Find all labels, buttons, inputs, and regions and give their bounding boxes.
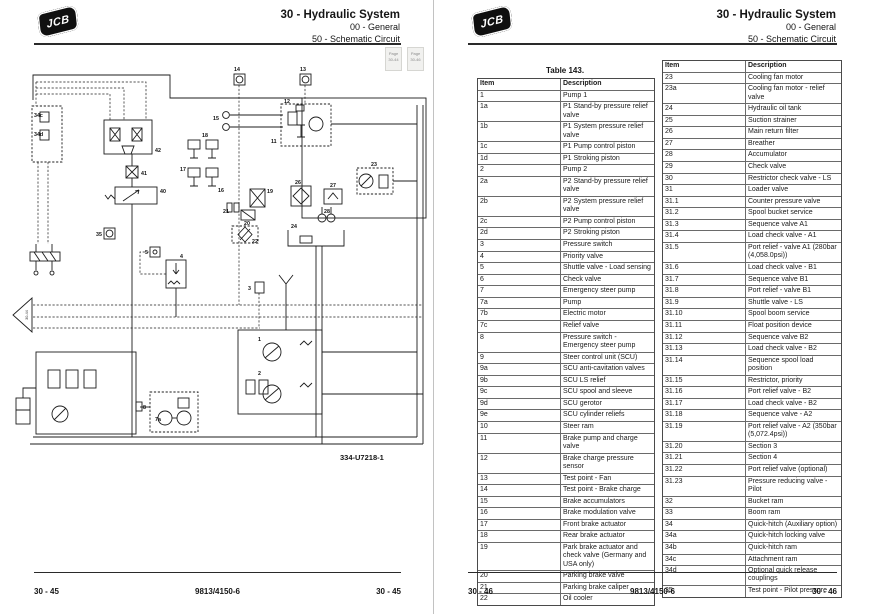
diagram-label-4: 4 (180, 254, 183, 260)
table-row: 31.18Sequence valve - A2 (663, 410, 841, 422)
item-cell: 29 (663, 162, 746, 173)
quick-hitch-ram (30, 244, 60, 275)
park-brake-group (227, 189, 265, 220)
item-cell: 31.9 (663, 298, 746, 309)
description-cell: Electric motor (561, 309, 654, 320)
table-row: 31.4Load check valve - A1 (663, 231, 841, 243)
description-cell: Pressure switch (561, 240, 654, 251)
table-row: 24Hydraulic oil tank (663, 104, 841, 116)
diagram-label-26: 26 (295, 180, 301, 186)
table-row: 31.5Port relief - valve A1 (280bar (4,05… (663, 243, 841, 263)
description-cell: Attachment ram (746, 555, 841, 566)
table-row: 4Priority valve (478, 252, 654, 264)
diagram-label-12: 12 (284, 99, 290, 105)
table-row: 2Pump 2 (478, 165, 654, 177)
table-row: 9aSCU anti-cavitation valves (478, 364, 654, 376)
item-cell: 31.4 (663, 231, 746, 242)
diagram-label-22: 22 (252, 239, 258, 245)
description-cell: Cooling fan motor - relief valve (746, 84, 841, 103)
hydraulic-tank (288, 230, 344, 444)
diagram-label-2: 2 (258, 371, 261, 377)
description-cell: Steer ram (561, 422, 654, 433)
item-cell: 13 (478, 474, 561, 485)
item-cell: 31.11 (663, 321, 746, 332)
table-header-row: ItemDescription (663, 61, 841, 73)
hydraulic-schematic: 30-44 1413121115181716231920212627282422… (0, 0, 433, 614)
description-cell: Hydraulic oil tank (746, 104, 841, 115)
description-cell: Sequence valve - A2 (746, 410, 841, 421)
description-cell: Sequence spool load position (746, 356, 841, 375)
description-cell: Counter pressure valve (746, 197, 841, 208)
description-cell: P1 Pump control piston (561, 142, 654, 153)
diagram-label-28: 28 (324, 209, 330, 215)
footer-rule (34, 572, 401, 574)
table-row: 31.9Shuttle valve - LS (663, 298, 841, 310)
description-cell: Port relief - valve A1 (280bar (4,058.0p… (746, 243, 841, 262)
scu-block (36, 352, 136, 434)
test-point-14 (234, 74, 245, 85)
item-cell: 24 (663, 104, 746, 115)
table-row: 18Rear brake actuator (478, 531, 654, 543)
diagram-label-15: 15 (213, 116, 219, 122)
description-cell: Optional quick release couplings (746, 566, 841, 585)
footer-rule (468, 572, 837, 574)
diagram-label-11: 11 (271, 139, 277, 145)
description-cell: Boom ram (746, 508, 841, 519)
description-cell: Shuttle valve - Load sensing (561, 263, 654, 274)
diagram-label-27: 27 (330, 183, 336, 189)
description-cell: Load check valve - B2 (746, 344, 841, 355)
table-row: 7bElectric motor (478, 309, 654, 321)
table-row: 15Brake accumulators (478, 497, 654, 509)
description-cell: P1 Stand-by pressure relief valve (561, 102, 654, 121)
description-cell: Quick-hitch ram (746, 543, 841, 554)
component-table-items-23-35: ItemDescription23Cooling fan motor23aCoo… (662, 60, 842, 598)
item-cell: 22 (478, 594, 561, 605)
description-cell: Load check valve - B1 (746, 263, 841, 274)
description-cell: Check valve (561, 275, 654, 286)
table-row: 2aP2 Stand-by pressure relief valve (478, 177, 654, 197)
item-cell: 31.2 (663, 208, 746, 219)
description-cell: Brake modulation valve (561, 508, 654, 519)
description-cell: Quick-hitch (Auxiliary option) (746, 520, 841, 531)
brake-pump-block (281, 104, 331, 146)
description-cell: SCU LS relief (561, 376, 654, 387)
table-row: 27Breather (663, 139, 841, 151)
item-cell: 10 (478, 422, 561, 433)
page-header: 30 - Hydraulic System 00 - General 50 - … (716, 8, 836, 45)
item-cell: 2a (478, 177, 561, 196)
description-cell: Shuttle valve - LS (746, 298, 841, 309)
description-cell: Port relief valve (optional) (746, 465, 841, 476)
item-cell: 25 (663, 116, 746, 127)
table-row: 17Front brake actuator (478, 520, 654, 532)
item-cell: 31 (663, 185, 746, 196)
table-row: 5Shuttle valve - Load sensing (478, 263, 654, 275)
description-cell: Brake pump and charge valve (561, 434, 654, 453)
table-row: 9eSCU cylinder reliefs (478, 410, 654, 422)
item-cell: 31.16 (663, 387, 746, 398)
table-row: 9bSCU LS relief (478, 376, 654, 388)
item-cell: 31.3 (663, 220, 746, 231)
table-row: 23Cooling fan motor (663, 73, 841, 85)
brake-actuators (188, 140, 218, 186)
item-cell: 34c (663, 555, 746, 566)
item-cell: 9b (478, 376, 561, 387)
diagram-label-14: 14 (234, 67, 240, 73)
test-point-13 (300, 74, 311, 85)
table-row: 34cAttachment ram (663, 555, 841, 567)
item-cell: 1d (478, 154, 561, 165)
column-header-description: Description (561, 79, 654, 90)
item-cell: 7b (478, 309, 561, 320)
table-row: 22Oil cooler (478, 594, 654, 605)
description-cell: Brake accumulators (561, 497, 654, 508)
column-header-description: Description (746, 61, 841, 72)
table-row: 31.12Sequence valve B2 (663, 333, 841, 345)
description-cell: Restrictor, priority (746, 376, 841, 387)
table-row: 31.7Sequence valve B1 (663, 275, 841, 287)
description-cell: Port relief - valve B1 (746, 286, 841, 297)
test-point-35 (104, 228, 115, 239)
table-row: 31Loader valve (663, 185, 841, 197)
item-cell: 7a (478, 298, 561, 309)
item-cell: 2b (478, 197, 561, 216)
item-cell: 2d (478, 228, 561, 239)
item-cell: 31.13 (663, 344, 746, 355)
diagram-label-7a: 7a (155, 417, 161, 423)
item-cell: 1c (478, 142, 561, 153)
item-cell: 31.23 (663, 477, 746, 496)
table-row: 16Brake modulation valve (478, 508, 654, 520)
description-cell: Main return filter (746, 127, 841, 138)
item-cell: 34b (663, 543, 746, 554)
item-cell: 31.19 (663, 422, 746, 441)
table-row: 31.11Float position device (663, 321, 841, 333)
item-cell: 30 (663, 174, 746, 185)
table-row: 9Steer control unit (SCU) (478, 353, 654, 365)
diagram-label-34c: 34c (34, 113, 43, 119)
description-cell: Spool bucket service (746, 208, 841, 219)
item-cell: 8 (478, 333, 561, 352)
footer-doc-number: 9813/4150-6 (468, 587, 837, 596)
table-row: 2dP2 Stroking piston (478, 228, 654, 240)
description-cell: Sequence valve B1 (746, 275, 841, 286)
item-cell: 6 (478, 275, 561, 286)
table-row: 2cP2 Pump control piston (478, 217, 654, 229)
main-pump-block (238, 330, 423, 414)
footer-doc-number: 9813/4150-6 (34, 587, 401, 596)
breather (324, 189, 342, 204)
column-header-item: Item (478, 79, 561, 90)
table-row: 12Brake charge pressure sensor (478, 454, 654, 474)
table-title: Table 143. (477, 66, 653, 75)
description-cell: Test point - Fan (561, 474, 654, 485)
diagram-label-1: 1 (258, 337, 261, 343)
table-row: 7cRelief valve (478, 321, 654, 333)
item-cell: 1a (478, 102, 561, 121)
header-rule (468, 43, 837, 45)
table-row: 26Main return filter (663, 127, 841, 139)
item-cell: 31.21 (663, 453, 746, 464)
description-cell: P2 System pressure relief valve (561, 197, 654, 216)
description-cell: SCU cylinder reliefs (561, 410, 654, 421)
description-cell: Port relief valve - A2 (350bar (5,072.4p… (746, 422, 841, 441)
item-cell: 23 (663, 73, 746, 84)
description-cell: Steer control unit (SCU) (561, 353, 654, 364)
continuation-label: 30-44 (25, 310, 29, 320)
steer-ram (16, 388, 36, 424)
jcb-logo: JCB (471, 4, 512, 39)
item-cell: 31.15 (663, 376, 746, 387)
item-cell: 31.22 (663, 465, 746, 476)
description-cell: Load check valve - B2 (746, 399, 841, 410)
table-row: 34bQuick-hitch ram (663, 543, 841, 555)
item-cell: 31.14 (663, 356, 746, 375)
item-cell: 19 (478, 543, 561, 570)
return-filter (291, 186, 311, 206)
item-cell: 31.6 (663, 263, 746, 274)
description-cell: Oil cooler (561, 594, 654, 605)
diagram-label-42: 42 (155, 148, 161, 154)
table-row: 10Steer ram (478, 422, 654, 434)
table-row: 1cP1 Pump control piston (478, 142, 654, 154)
item-cell: 14 (478, 485, 561, 496)
table-row: 1Pump 1 (478, 91, 654, 103)
item-cell: 33 (663, 508, 746, 519)
diagram-label-3: 3 (248, 286, 251, 292)
diagram-label-19: 19 (267, 189, 273, 195)
description-cell: Front brake actuator (561, 520, 654, 531)
table-row: 23aCooling fan motor - relief valve (663, 84, 841, 104)
item-cell: 5 (478, 263, 561, 274)
table-row: 31.23Pressure reducing valve - Pilot (663, 477, 841, 497)
item-cell: 11 (478, 434, 561, 453)
diagram-label-20: 20 (244, 221, 250, 227)
cooling-fan-motor (357, 168, 417, 194)
diagram-label-5: 5 (145, 250, 148, 256)
table-row: 32Bucket ram (663, 497, 841, 509)
diagram-label-24: 24 (291, 224, 297, 230)
page-title: 30 - Hydraulic System (716, 8, 836, 22)
description-cell: Float position device (746, 321, 841, 332)
table-row: 31.15Restrictor, priority (663, 376, 841, 388)
description-cell: P2 Pump control piston (561, 217, 654, 228)
description-cell: Section 3 (746, 442, 841, 453)
description-cell: Test point - Brake charge (561, 485, 654, 496)
item-cell: 17 (478, 520, 561, 531)
item-cell: 31.20 (663, 442, 746, 453)
item-cell: 9 (478, 353, 561, 364)
priority-valve (140, 252, 186, 317)
table-row: 31.6Load check valve - B1 (663, 263, 841, 275)
footer-page-right: 30 - 45 (376, 587, 401, 596)
manual-page-left: JCB 30 - Hydraulic System 00 - General 5… (0, 0, 434, 614)
description-cell: Emergency steer pump (561, 286, 654, 297)
description-cell: SCU anti-cavitation valves (561, 364, 654, 375)
page-subtitle-1: 00 - General (716, 22, 836, 33)
diagram-label-35: 35 (96, 232, 102, 238)
table-row: 31.1Counter pressure valve (663, 197, 841, 209)
table-row: 1dP1 Stroking piston (478, 154, 654, 166)
item-cell: 16 (478, 508, 561, 519)
table-row: 9dSCU gerotor (478, 399, 654, 411)
description-cell: Relief valve (561, 321, 654, 332)
item-cell: 31.17 (663, 399, 746, 410)
schematic-linework (13, 74, 426, 444)
table-row: 3Pressure switch (478, 240, 654, 252)
item-cell: 1b (478, 122, 561, 141)
table-row: 31.21Section 4 (663, 453, 841, 465)
solenoid-valve-40 (105, 187, 157, 204)
description-cell: P1 Stroking piston (561, 154, 654, 165)
item-cell: 31.7 (663, 275, 746, 286)
item-cell: 31.12 (663, 333, 746, 344)
item-cell: 2 (478, 165, 561, 176)
diagram-label-41: 41 (141, 171, 147, 177)
item-cell: 9c (478, 387, 561, 398)
table-row: 31.10Spool boom service (663, 309, 841, 321)
description-cell: Brake charge pressure sensor (561, 454, 654, 473)
item-cell: 9e (478, 410, 561, 421)
description-cell: SCU gerotor (561, 399, 654, 410)
diagram-label-8: 8 (143, 405, 146, 411)
table-row: 31.22Port relief valve (optional) (663, 465, 841, 477)
description-cell: Sequence valve B2 (746, 333, 841, 344)
description-cell: P2 Stand-by pressure relief valve (561, 177, 654, 196)
table-row: 31.3Sequence valve A1 (663, 220, 841, 232)
item-cell: 7c (478, 321, 561, 332)
continuation-arrow (13, 298, 32, 332)
footer-page-right: 30 - 46 (812, 587, 837, 596)
emergency-steer-pump (136, 392, 198, 432)
item-cell: 31.8 (663, 286, 746, 297)
item-cell: 2c (478, 217, 561, 228)
item-cell: 7 (478, 286, 561, 297)
description-cell: Check valve (746, 162, 841, 173)
description-cell: Load check valve - A1 (746, 231, 841, 242)
item-cell: 12 (478, 454, 561, 473)
item-cell: 32 (663, 497, 746, 508)
diagram-label-18: 18 (202, 133, 208, 139)
table-row: 1aP1 Stand-by pressure relief valve (478, 102, 654, 122)
table-row: 20Parking brake valve (478, 571, 654, 583)
item-cell: 31.10 (663, 309, 746, 320)
description-cell: Pump 2 (561, 165, 654, 176)
table-row: 33Boom ram (663, 508, 841, 520)
table-row: 1bP1 System pressure relief valve (478, 122, 654, 142)
table-row: 7Emergency steer pump (478, 286, 654, 298)
diagram-label-21: 21 (223, 209, 229, 215)
table-row: 28Accumulator (663, 150, 841, 162)
item-cell: 34a (663, 531, 746, 542)
description-cell: Cooling fan motor (746, 73, 841, 84)
item-cell: 34d (663, 566, 746, 585)
table-row: 31.13Load check valve - B2 (663, 344, 841, 356)
description-cell: Park brake actuator and check valve (Ger… (561, 543, 654, 570)
item-cell: 9d (478, 399, 561, 410)
table-header-row: ItemDescription (478, 79, 654, 91)
table-row: 31.8Port relief - valve B1 (663, 286, 841, 298)
description-cell: Restrictor check valve - LS (746, 174, 841, 185)
description-cell: P1 System pressure relief valve (561, 122, 654, 141)
item-cell: 28 (663, 150, 746, 161)
item-cell: 31.5 (663, 243, 746, 262)
description-cell: Section 4 (746, 453, 841, 464)
description-cell: Pressure reducing valve - Pilot (746, 477, 841, 496)
table-row: 29Check valve (663, 162, 841, 174)
table-row: 13Test point - Fan (478, 474, 654, 486)
item-cell: 18 (478, 531, 561, 542)
description-cell: Accumulator (746, 150, 841, 161)
description-cell: Suction strainer (746, 116, 841, 127)
item-cell: 9a (478, 364, 561, 375)
item-cell: 31.1 (663, 197, 746, 208)
item-cell: 4 (478, 252, 561, 263)
description-cell: P2 Stroking piston (561, 228, 654, 239)
quick-hitch-valve-block (104, 120, 152, 154)
description-cell: SCU spool and sleeve (561, 387, 654, 398)
description-cell: Quick-hitch locking valve (746, 531, 841, 542)
description-cell: Spool boom service (746, 309, 841, 320)
table-row: 34aQuick-hitch locking valve (663, 531, 841, 543)
table-row: 31.20Section 3 (663, 442, 841, 454)
item-cell: 26 (663, 127, 746, 138)
table-row: 34Quick-hitch (Auxiliary option) (663, 520, 841, 532)
description-cell: Pressure switch - Emergency steer pump (561, 333, 654, 352)
component-table-items-1-22: ItemDescription1Pump 11aP1 Stand-by pres… (477, 78, 655, 606)
diagram-label-23: 23 (371, 162, 377, 168)
description-cell: Priority valve (561, 252, 654, 263)
description-cell: Bucket ram (746, 497, 841, 508)
description-cell: Pump (561, 298, 654, 309)
table-row: 31.2Spool bucket service (663, 208, 841, 220)
table-row: 8Pressure switch - Emergency steer pump (478, 333, 654, 353)
table-row: 31.19Port relief valve - A2 (350bar (5,0… (663, 422, 841, 442)
description-cell: Rear brake actuator (561, 531, 654, 542)
figure-reference: 334-U7218-1 (340, 453, 384, 462)
item-cell: 3 (478, 240, 561, 251)
table-row: 9cSCU spool and sleeve (478, 387, 654, 399)
table-row: 7aPump (478, 298, 654, 310)
description-cell: Pump 1 (561, 91, 654, 102)
diagram-label-17: 17 (180, 167, 186, 173)
table-row: 6Check valve (478, 275, 654, 287)
manual-page-right: JCB 30 - Hydraulic System 00 - General 5… (434, 0, 869, 614)
table-row: 31.16Port relief valve - B2 (663, 387, 841, 399)
table-row: 31.17Load check valve - B2 (663, 399, 841, 411)
diagram-label-16: 16 (218, 188, 224, 194)
table-row: 30Restrictor check valve - LS (663, 174, 841, 186)
description-cell: Sequence valve A1 (746, 220, 841, 231)
item-cell: 15 (478, 497, 561, 508)
item-cell: 31.18 (663, 410, 746, 421)
diagram-label-40: 40 (160, 189, 166, 195)
description-cell: Breather (746, 139, 841, 150)
item-cell: 1 (478, 91, 561, 102)
item-cell: 23a (663, 84, 746, 103)
diagram-label-34d: 34d (34, 132, 43, 138)
jcb-logo-text: JCB (480, 13, 504, 31)
table-row: 25Suction strainer (663, 116, 841, 128)
column-header-item: Item (663, 61, 746, 72)
table-row: 31.14Sequence spool load position (663, 356, 841, 376)
description-cell: Loader valve (746, 185, 841, 196)
item-cell: 27 (663, 139, 746, 150)
table-row: 2bP2 System pressure relief valve (478, 197, 654, 217)
table-row: 19Park brake actuator and check valve (G… (478, 543, 654, 571)
item-cell: 34 (663, 520, 746, 531)
